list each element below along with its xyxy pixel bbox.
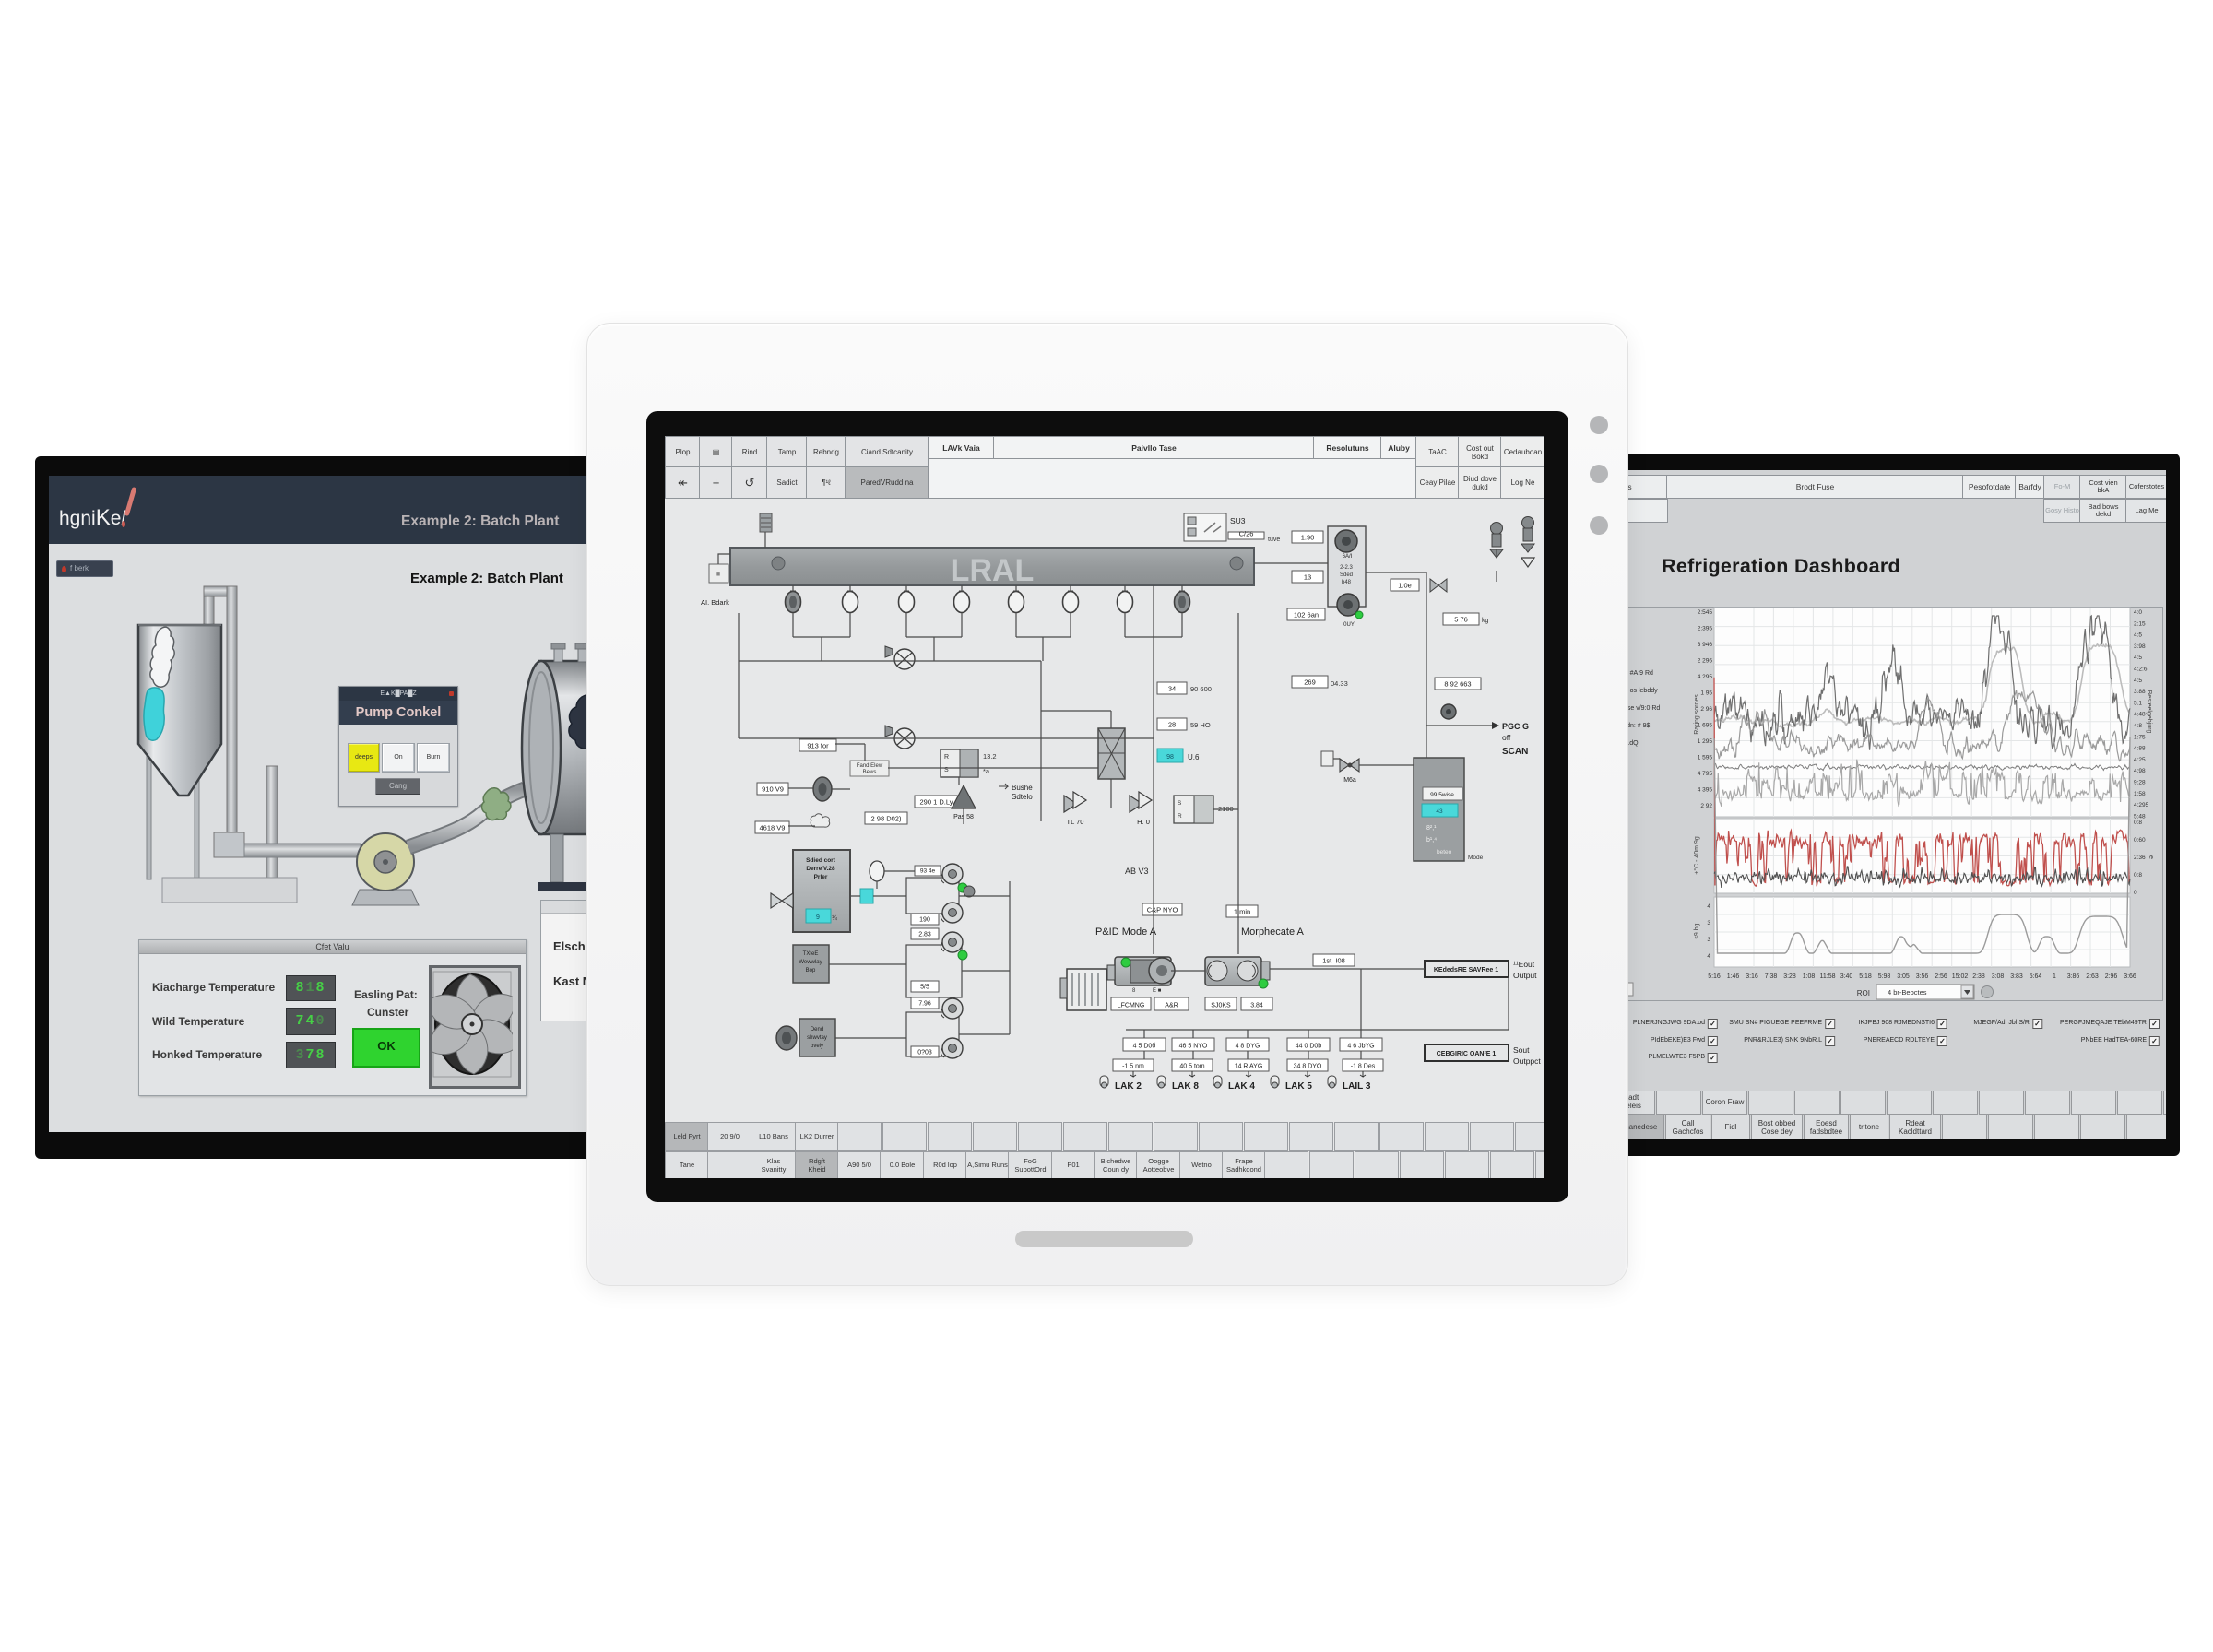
svg-text:AI. Bdark: AI. Bdark xyxy=(701,598,729,607)
svg-text:5/5: 5/5 xyxy=(920,985,929,991)
svg-text:H. 0: H. 0 xyxy=(1137,818,1150,826)
svg-text:kg: kg xyxy=(1482,618,1489,624)
svg-text:Sdtelo: Sdtelo xyxy=(1012,793,1033,801)
svg-text:5:18: 5:18 xyxy=(1859,973,1872,980)
svg-text:5:98: 5:98 xyxy=(1878,973,1891,980)
svg-text:C&P NYO: C&P NYO xyxy=(1147,906,1178,914)
svg-text:3:88: 3:88 xyxy=(2134,689,2146,695)
svg-text:102 6an: 102 6an xyxy=(1294,611,1319,619)
svg-text:LRAL: LRAL xyxy=(951,553,1035,588)
svg-text:3: 3 xyxy=(1707,937,1710,943)
svg-text:KEdedsRE SAVRee 1: KEdedsRE SAVRee 1 xyxy=(1434,967,1498,973)
svg-text:2-2.3: 2-2.3 xyxy=(1340,565,1353,571)
svg-text:3:16: 3:16 xyxy=(1746,973,1758,980)
svg-text:Dend: Dend xyxy=(811,1027,823,1032)
svg-text:1.0e: 1.0e xyxy=(1398,582,1412,590)
svg-text:Prler: Prler xyxy=(814,874,828,880)
svg-text:1 min: 1 min xyxy=(1234,908,1250,916)
svg-text:2:38: 2:38 xyxy=(1972,973,1985,980)
svg-text:5:16: 5:16 xyxy=(1708,973,1721,980)
svg-text:5:64: 5:64 xyxy=(2030,973,2042,980)
svg-text:14 R AYG: 14 R AYG xyxy=(1235,1064,1263,1070)
svg-text:6A/I: 6A/I xyxy=(1343,554,1353,560)
svg-text:4:48: 4:48 xyxy=(2134,712,2146,718)
svg-text:2:36: 2:36 xyxy=(2134,855,2146,861)
svg-text:4:5: 4:5 xyxy=(2134,678,2142,684)
svg-text:9:28: 9:28 xyxy=(2134,780,2146,786)
svg-text:TL 70: TL 70 xyxy=(1067,818,1084,826)
svg-text:E ■: E ■ xyxy=(1153,988,1162,994)
svg-text:8 92 663: 8 92 663 xyxy=(1444,680,1471,689)
svg-text:4:0: 4:0 xyxy=(2134,609,2142,616)
svg-text:4: 4 xyxy=(1707,953,1710,960)
svg-text:LAK 8: LAK 8 xyxy=(1172,1081,1199,1091)
svg-text:1:58: 1:58 xyxy=(2134,791,2146,797)
svg-text:Wewwlay: Wewwlay xyxy=(799,960,822,965)
svg-text:3:05: 3:05 xyxy=(1897,973,1910,980)
svg-text:0: 0 xyxy=(2134,890,2137,896)
svg-text:Fand Elew: Fand Elew xyxy=(857,763,883,769)
svg-text:0:8: 0:8 xyxy=(2134,872,2142,879)
svg-text:3 946: 3 946 xyxy=(1698,642,1713,648)
svg-text:1 595: 1 595 xyxy=(1698,755,1713,761)
svg-text:4618 V9: 4618 V9 xyxy=(760,824,786,832)
svg-text:4:98: 4:98 xyxy=(2134,768,2146,774)
svg-text:3:40: 3:40 xyxy=(1840,973,1853,980)
svg-text:8²,¹: 8²,¹ xyxy=(1426,825,1437,832)
svg-text:99 5wise: 99 5wise xyxy=(1430,792,1454,798)
svg-text:beteo: beteo xyxy=(1437,849,1452,855)
svg-text:8: 8 xyxy=(1132,988,1136,994)
svg-text:7.96: 7.96 xyxy=(918,1001,931,1008)
svg-text:2:56: 2:56 xyxy=(1935,973,1947,980)
svg-text:s9 bg: s9 bg xyxy=(1694,923,1700,938)
svg-text:1:46: 1:46 xyxy=(1727,973,1740,980)
svg-text:40 5 tom: 40 5 tom xyxy=(1179,1064,1204,1070)
svg-text:4:295: 4:295 xyxy=(2134,802,2149,808)
svg-text:4 295: 4 295 xyxy=(1698,674,1713,680)
svg-text:2 96: 2 96 xyxy=(1700,706,1712,713)
svg-text:LAIL 3: LAIL 3 xyxy=(1343,1081,1371,1091)
svg-text:3:28: 3:28 xyxy=(1783,973,1796,980)
svg-text:PGC G: PGC G xyxy=(1502,722,1529,731)
svg-text:U.6: U.6 xyxy=(1188,753,1200,761)
svg-text:98: 98 xyxy=(1166,754,1174,761)
svg-text:CEBGIRIC OAN²E 1: CEBGIRIC OAN²E 1 xyxy=(1437,1051,1497,1057)
svg-text:0:8: 0:8 xyxy=(2134,820,2142,826)
svg-text:4:5: 4:5 xyxy=(2134,655,2142,661)
svg-text:4 795: 4 795 xyxy=(1698,771,1713,777)
svg-text:3:08: 3:08 xyxy=(1992,973,2005,980)
svg-text:Sded: Sded xyxy=(1340,572,1353,578)
svg-text:2:395: 2:395 xyxy=(1698,626,1713,632)
svg-text:93 4e: 93 4e xyxy=(920,868,936,875)
svg-text:Bews: Bews xyxy=(863,770,877,775)
svg-text:4:2:6: 4:2:6 xyxy=(2134,667,2148,673)
svg-text:913 for: 913 for xyxy=(807,742,829,750)
svg-text:90 600: 90 600 xyxy=(1190,685,1212,693)
svg-text:+°C - 40m 9g: +°C - 40m 9g xyxy=(1693,836,1700,875)
svg-text:4 5 D0б: 4 5 D0б xyxy=(1133,1043,1156,1050)
svg-text:28: 28 xyxy=(1168,721,1176,729)
svg-text:P&ID Mode A: P&ID Mode A xyxy=(1095,926,1157,938)
svg-text:2.83: 2.83 xyxy=(918,932,931,938)
svg-text:-1 8 Des: -1 8 Des xyxy=(1351,1064,1376,1070)
svg-text:34 8 DYO: 34 8 DYO xyxy=(1294,1064,1322,1070)
svg-text:¹¹Eout: ¹¹Eout xyxy=(1513,960,1535,969)
svg-text:off: off xyxy=(1502,733,1511,742)
svg-text:4:25: 4:25 xyxy=(2134,757,2146,763)
svg-text:7:38: 7:38 xyxy=(1765,973,1778,980)
svg-text:269: 269 xyxy=(1304,678,1316,687)
svg-text:SJ0KS: SJ0KS xyxy=(1211,1003,1231,1009)
svg-text:TXteE: TXteE xyxy=(803,951,819,957)
svg-text:Bushe: Bushe xyxy=(1012,784,1033,792)
svg-text:5 76: 5 76 xyxy=(1454,616,1468,624)
svg-text:290 1 D.Ly: 290 1 D.Ly xyxy=(920,798,953,807)
svg-text:4 br-Beoctes: 4 br-Beoctes xyxy=(1888,988,1927,997)
svg-text:1st I08: 1st I08 xyxy=(1322,957,1345,965)
svg-text:3:98: 3:98 xyxy=(2134,643,2146,650)
svg-text:0UY: 0UY xyxy=(1343,622,1355,628)
svg-text:4 8 DYG: 4 8 DYG xyxy=(1236,1044,1260,1050)
svg-text:5:1: 5:1 xyxy=(2134,700,2142,706)
svg-text:46 5 NYO: 46 5 NYO xyxy=(1179,1044,1208,1050)
svg-text:Sout: Sout xyxy=(1513,1045,1530,1055)
svg-text:4:5: 4:5 xyxy=(2134,632,2142,639)
svg-text:4 6 JbYG: 4 6 JbYG xyxy=(1347,1044,1374,1050)
svg-text:shwvtay: shwvtay xyxy=(807,1035,827,1041)
svg-text:Raring sordes: Raring sordes xyxy=(1694,694,1700,735)
svg-text:b¹,⁴: b¹,⁴ xyxy=(1426,837,1437,844)
svg-text:1:08: 1:08 xyxy=(1803,973,1816,980)
svg-text:4: 4 xyxy=(1707,903,1710,910)
svg-text:910 V9: 910 V9 xyxy=(762,785,784,794)
svg-text:LFCMNG: LFCMNG xyxy=(1118,1003,1145,1009)
svg-text:2 92: 2 92 xyxy=(1700,803,1712,809)
svg-text:SU3: SU3 xyxy=(1230,516,1246,525)
svg-text:ROI: ROI xyxy=(1857,989,1870,997)
svg-text:LAK 5: LAK 5 xyxy=(1285,1081,1312,1091)
svg-text:LAK 2: LAK 2 xyxy=(1115,1081,1142,1091)
svg-text:3.84: 3.84 xyxy=(1250,1003,1263,1009)
svg-text:4:8: 4:8 xyxy=(2134,723,2142,729)
svg-text:tuve: tuve xyxy=(1268,537,1280,543)
svg-text:3:86: 3:86 xyxy=(2067,973,2080,980)
svg-text:3:83: 3:83 xyxy=(2010,973,2023,980)
svg-text:Bop: Bop xyxy=(806,968,816,973)
svg-text:Mode: Mode xyxy=(1468,855,1484,861)
svg-text:2:96: 2:96 xyxy=(2105,973,2118,980)
svg-text:1:75: 1:75 xyxy=(2134,734,2146,740)
svg-text:M6a: M6a xyxy=(1343,777,1356,784)
svg-text:A&R: A&R xyxy=(1165,1003,1178,1009)
svg-text:Output: Output xyxy=(1513,971,1537,980)
svg-text:R: R xyxy=(1178,813,1182,820)
svg-text:Derre'V.28: Derre'V.28 xyxy=(806,866,835,872)
svg-text:AB V3: AB V3 xyxy=(1125,867,1149,876)
svg-text:C/26: C/26 xyxy=(1239,530,1254,538)
svg-text:04.33: 04.33 xyxy=(1331,679,1348,688)
svg-text:9: 9 xyxy=(816,914,820,921)
svg-text:0:60: 0:60 xyxy=(2134,837,2146,844)
svg-text:3: 3 xyxy=(1707,920,1710,926)
svg-text:4:88: 4:88 xyxy=(2134,746,2146,752)
svg-text:43: 43 xyxy=(1436,808,1443,815)
svg-text:R: R xyxy=(944,754,949,761)
svg-text:LAK 4: LAK 4 xyxy=(1228,1081,1255,1091)
svg-text:2:545: 2:545 xyxy=(1698,609,1713,616)
svg-text:15:02: 15:02 xyxy=(1952,973,1969,980)
svg-text:44 0 D0b: 44 0 D0b xyxy=(1296,1044,1322,1050)
svg-text:SCAN: SCAN xyxy=(1502,747,1528,757)
svg-text:0?03: 0?03 xyxy=(917,1050,932,1056)
svg-text:-1 5 nm: -1 5 nm xyxy=(1122,1064,1144,1070)
svg-text:2:63: 2:63 xyxy=(2086,973,2099,980)
svg-text:1 295: 1 295 xyxy=(1698,738,1713,745)
svg-text:Morphecate A: Morphecate A xyxy=(1241,926,1305,938)
svg-text:11:58: 11:58 xyxy=(1820,973,1836,980)
svg-text:1.90: 1.90 xyxy=(1301,534,1315,542)
svg-text:¼: ¼ xyxy=(832,915,837,922)
svg-text:59 HO: 59 HO xyxy=(1190,721,1211,729)
svg-text:13: 13 xyxy=(1304,573,1311,582)
svg-text:b48: b48 xyxy=(1342,580,1352,585)
svg-text:2 98 D02): 2 98 D02) xyxy=(871,815,902,823)
svg-text:e: e xyxy=(2148,855,2154,859)
svg-text:2 296: 2 296 xyxy=(1698,658,1713,665)
svg-text:34: 34 xyxy=(1168,685,1176,693)
svg-text:2:15: 2:15 xyxy=(2134,620,2146,627)
svg-text:Outppct: Outppct xyxy=(1513,1056,1541,1066)
svg-text:13.2: 13.2 xyxy=(983,752,997,761)
svg-text:bvely: bvely xyxy=(811,1044,823,1049)
svg-text:1: 1 xyxy=(2053,973,2056,980)
svg-text:3:56: 3:56 xyxy=(1916,973,1929,980)
svg-text:1 95: 1 95 xyxy=(1700,690,1712,697)
svg-text:Besteelgebjurg: Besteelgebjurg xyxy=(2146,690,2152,734)
svg-text:Sdied cort: Sdied cort xyxy=(806,857,836,864)
svg-text:190: 190 xyxy=(919,917,930,924)
svg-text:3:66: 3:66 xyxy=(2124,973,2136,980)
svg-text:4 395: 4 395 xyxy=(1698,787,1713,794)
svg-text:■: ■ xyxy=(716,572,720,578)
svg-text:S: S xyxy=(1178,800,1182,807)
